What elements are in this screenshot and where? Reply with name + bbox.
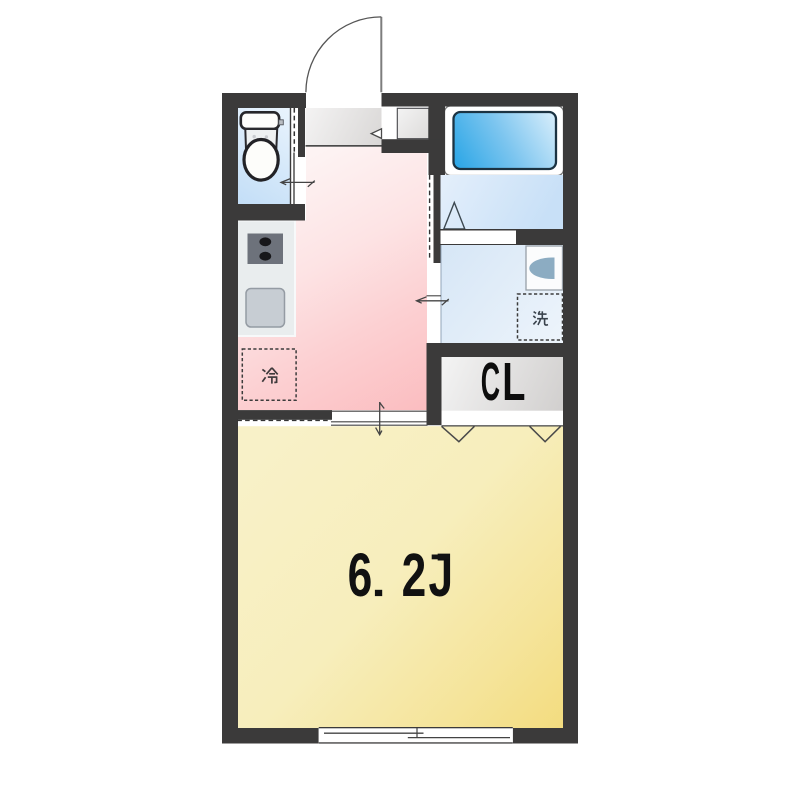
svg-text:L: L <box>502 352 525 412</box>
svg-text:J: J <box>428 541 453 610</box>
svg-text:2: 2 <box>402 541 427 610</box>
svg-text:6: 6 <box>348 541 373 610</box>
svg-text:C: C <box>481 352 500 411</box>
